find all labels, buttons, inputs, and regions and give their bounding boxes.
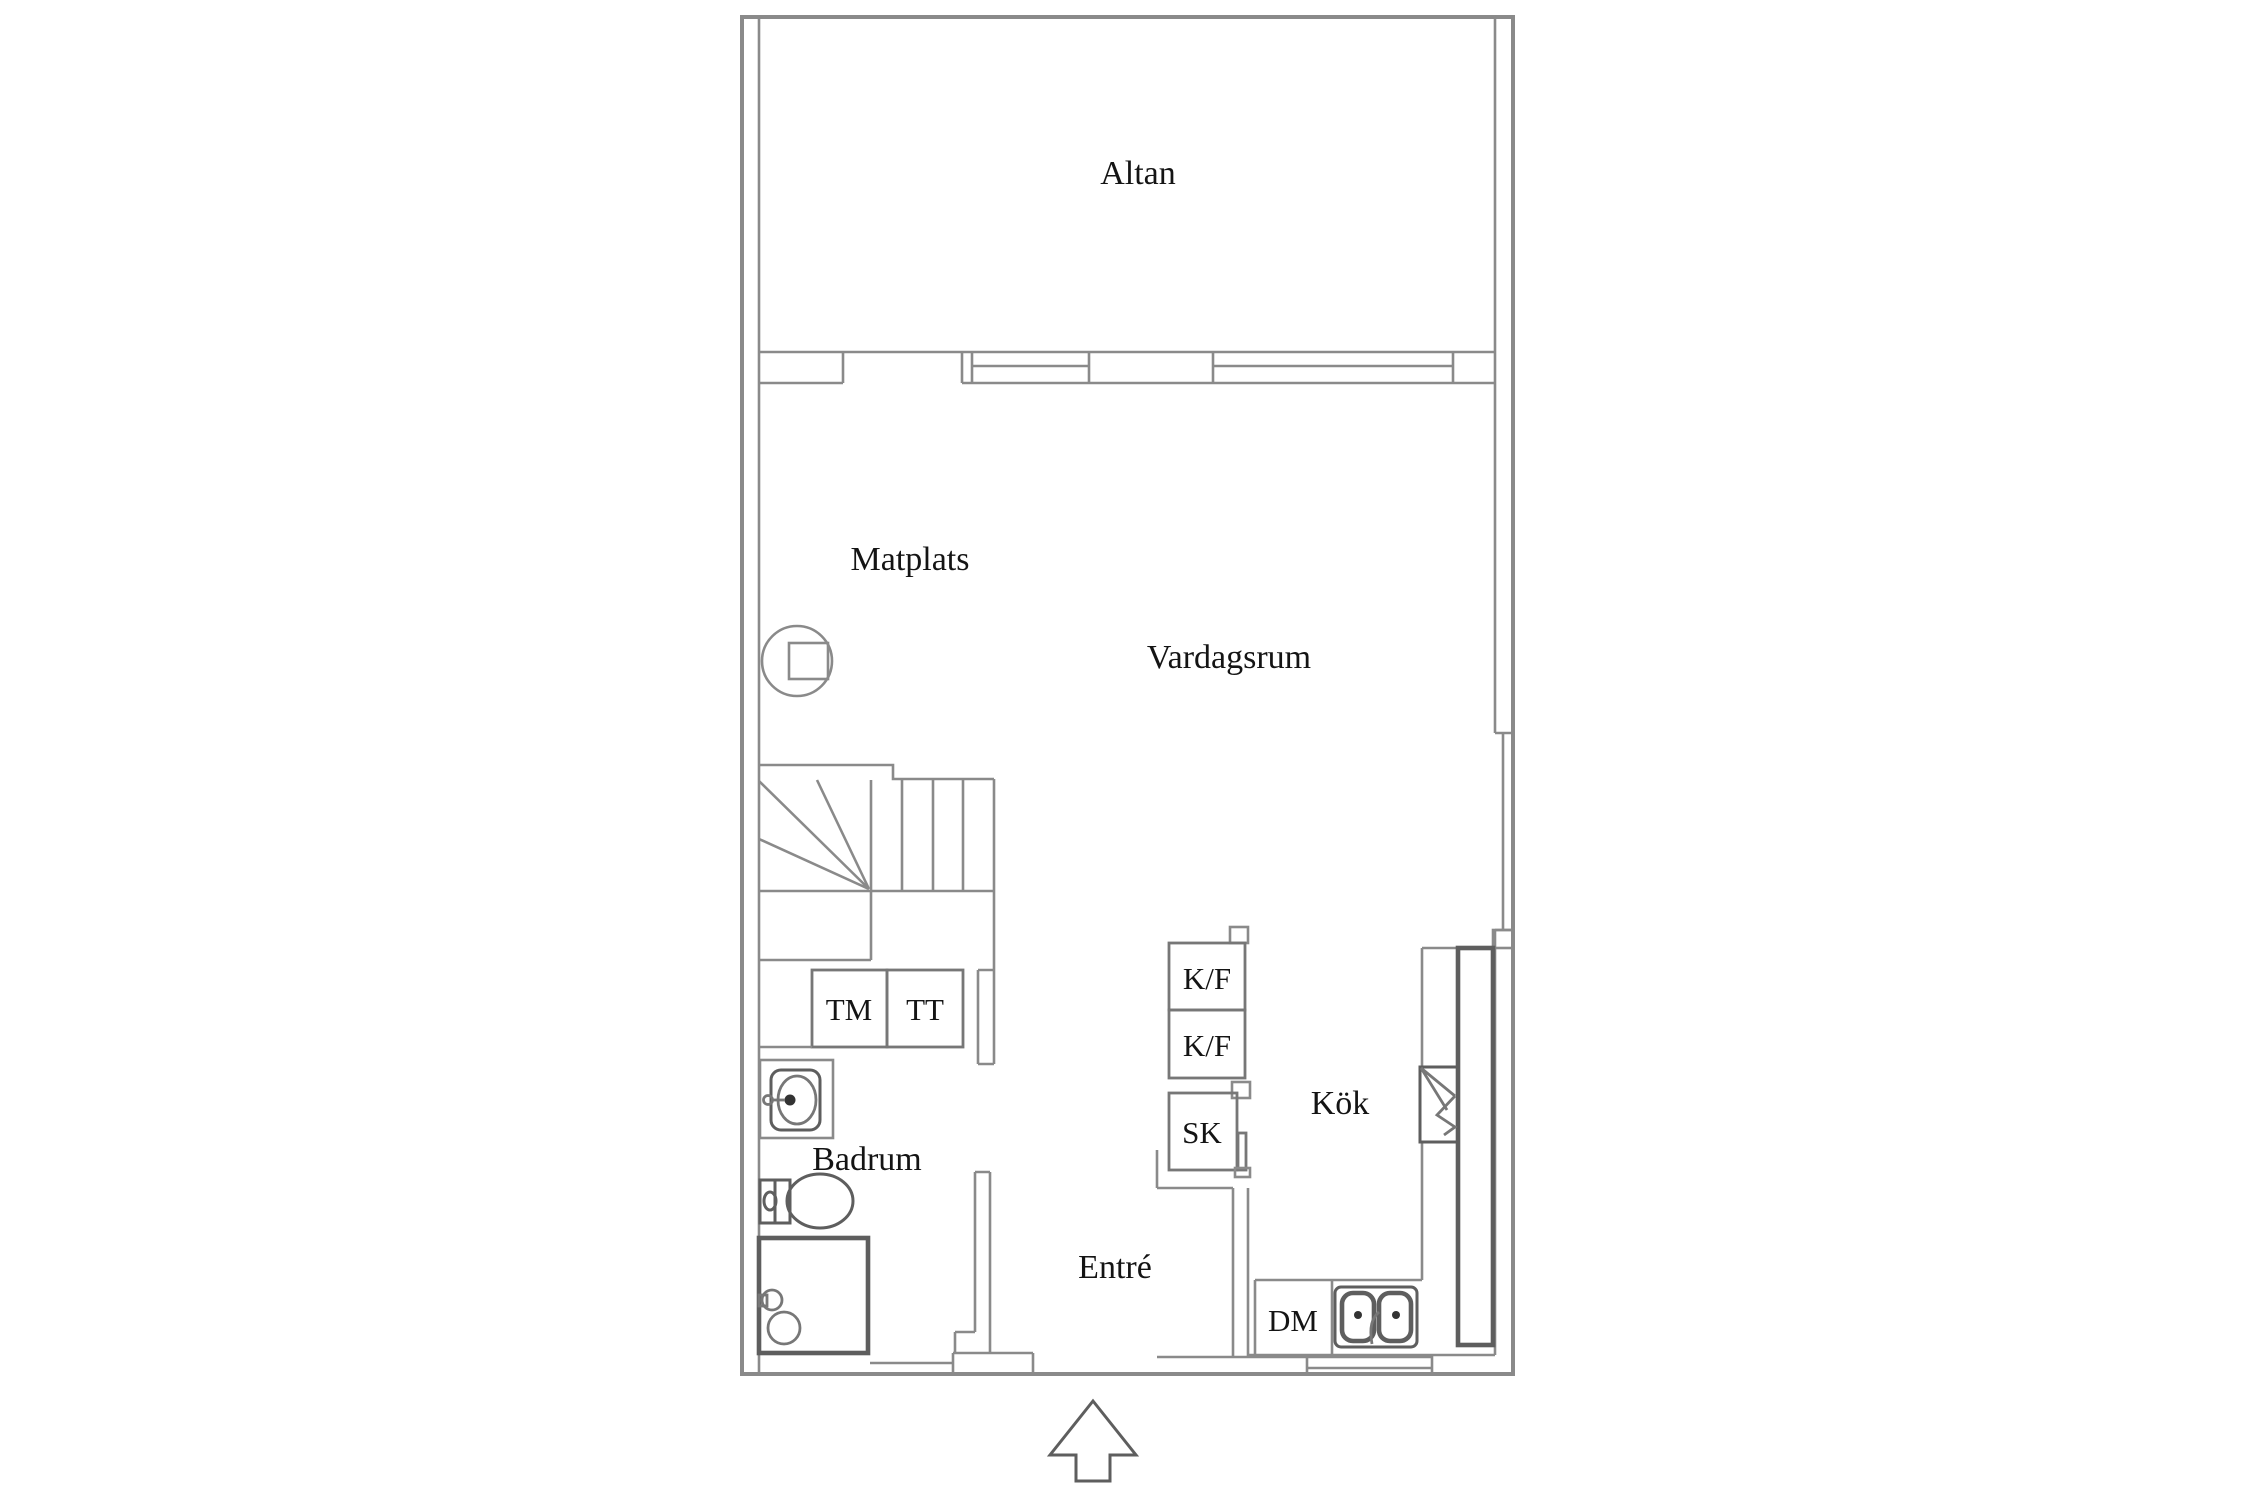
- appliance-label-tt: TT: [906, 992, 944, 1027]
- window-icon: [1495, 733, 1513, 930]
- wall-stub: [1232, 1082, 1250, 1098]
- stairs-icon: [759, 765, 994, 1064]
- room-label-entre: Entré: [1078, 1249, 1152, 1286]
- kitchen: [1248, 930, 1513, 1355]
- bathroom: [759, 1060, 953, 1363]
- fireplace-icon: [762, 626, 832, 696]
- room-label-matplats: Matplats: [851, 541, 970, 578]
- kitchen-sink-icon: [1335, 1287, 1417, 1347]
- window-icon: [1213, 352, 1453, 383]
- terrace-wall-and-windows: [759, 352, 1495, 383]
- room-label-kok: Kök: [1311, 1085, 1370, 1122]
- room-label-vardagsrum: Vardagsrum: [1147, 639, 1311, 676]
- shower-icon: [759, 1238, 868, 1353]
- appliance-label-tm: TM: [826, 992, 873, 1027]
- appliance-label-kf-lower: K/F: [1183, 1028, 1231, 1063]
- washbasin-icon: [760, 1060, 833, 1138]
- toilet-icon: [760, 1174, 853, 1228]
- floor-plan-page: Altan Matplats Vardagsrum Kök Badrum Ent…: [0, 0, 2250, 1500]
- floor-plan-canvas: Altan Matplats Vardagsrum Kök Badrum Ent…: [0, 0, 2250, 1500]
- appliance-label-sk: SK: [1182, 1115, 1222, 1150]
- stove-icon: [1420, 1067, 1458, 1142]
- tall-cabinet-run: [1458, 948, 1493, 1345]
- window-icon: [972, 352, 1089, 383]
- appliance-label-dm: DM: [1268, 1303, 1318, 1338]
- room-label-badrum: Badrum: [812, 1141, 922, 1178]
- appliance-label-kf-upper: K/F: [1183, 961, 1231, 996]
- laundry-area: [759, 970, 994, 1064]
- room-label-altan: Altan: [1100, 155, 1176, 192]
- door-leaf: [1238, 1133, 1246, 1170]
- entrance-arrow-icon: [1050, 1401, 1136, 1481]
- wall-stub: [1230, 927, 1248, 943]
